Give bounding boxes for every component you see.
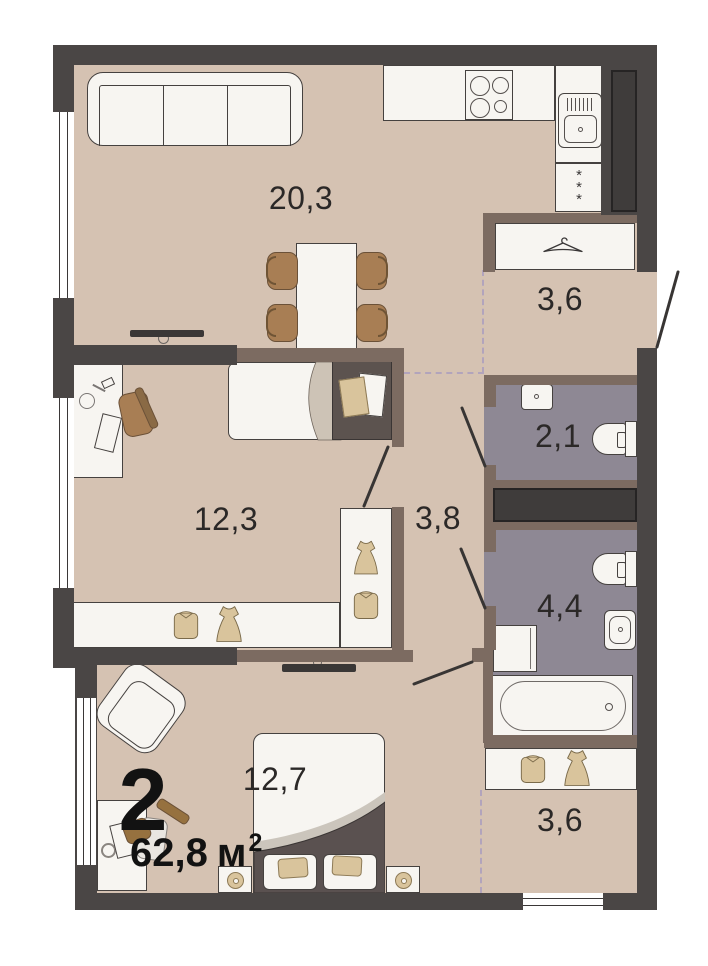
wall-partition — [484, 606, 496, 650]
wardrobe-tall — [340, 508, 392, 648]
toilet-detail — [617, 562, 626, 578]
chair-armrest — [378, 256, 388, 285]
wc-sink — [521, 384, 553, 410]
sofa-cushion-divider — [227, 86, 228, 145]
keyboard — [94, 413, 122, 453]
room-area-label-bedroom-2: 12,3 — [194, 503, 258, 535]
wc-toilet — [592, 423, 626, 455]
pillow-tan — [338, 376, 369, 417]
zone-line-bedroom-hall — [480, 790, 482, 893]
dining-chair — [267, 252, 298, 290]
wall-interior-bearing — [73, 345, 237, 365]
wall-exterior-right — [637, 348, 657, 908]
window-glass-line — [67, 398, 68, 588]
window-glass-line — [523, 898, 603, 899]
dining-chair — [356, 304, 387, 342]
tv-bedroom — [282, 664, 356, 672]
window-glass-line — [90, 698, 91, 865]
wall-partition — [484, 465, 496, 480]
lamp-center — [401, 878, 407, 884]
wall-partition — [484, 522, 637, 530]
nightstand — [386, 866, 420, 893]
wall-exterior-left — [53, 45, 74, 112]
room-area-label-wardrobe-hall: 3,6 — [537, 804, 583, 836]
washer-door-line — [530, 628, 531, 669]
drain-icon — [618, 627, 623, 632]
drain-icon — [605, 703, 613, 711]
shirt-icon — [172, 608, 200, 641]
bathtub — [492, 675, 633, 737]
chair-armrest — [378, 308, 388, 337]
wall-partition — [237, 650, 413, 662]
chair-armrest — [266, 308, 276, 337]
toilet-detail — [617, 432, 626, 448]
wall-partition — [484, 385, 496, 407]
wall-partition — [484, 480, 637, 488]
shirt-icon — [352, 588, 380, 621]
dress-icon — [351, 538, 381, 578]
burner-icon — [470, 98, 490, 118]
pillow-tan — [331, 855, 362, 877]
wall-partition — [484, 530, 496, 552]
floor-plan: * * * — [0, 0, 708, 966]
washing-machine — [493, 625, 537, 672]
wall-partition — [484, 375, 637, 385]
drain-icon — [534, 394, 539, 399]
bath-toilet — [592, 553, 626, 585]
dining-chair — [356, 252, 387, 290]
room-area-label-corridor: 3,8 — [415, 502, 461, 534]
dress-icon — [213, 604, 245, 645]
fridge: * * * — [555, 163, 603, 212]
zone-line-hall-corridor — [404, 372, 484, 374]
shirt-icon — [519, 752, 547, 785]
burner-icon — [470, 76, 490, 96]
bath-toilet-tank — [625, 551, 637, 587]
window-glass-line — [83, 698, 84, 865]
total-area-title: 62,8м2 — [130, 833, 262, 873]
wall-partition — [392, 352, 404, 447]
wall-exterior-top — [53, 45, 601, 65]
tv-living-room — [130, 330, 204, 337]
floor-entrance-opening — [637, 272, 657, 348]
sofa — [87, 72, 303, 146]
room-area-label-bathroom: 4,4 — [537, 590, 583, 622]
total-area-unit: м — [217, 831, 247, 875]
wall-partition — [484, 735, 637, 748]
wall-partition — [484, 488, 493, 522]
room-area-label-living-kitchen: 20,3 — [269, 182, 333, 214]
wall-interior-bearing — [53, 648, 237, 665]
wall-partition — [483, 660, 493, 743]
sofa-seat — [99, 85, 291, 146]
window — [53, 398, 74, 588]
dress-icon — [561, 748, 593, 789]
wall-partition — [237, 348, 404, 362]
desk — [73, 362, 123, 478]
window-glass-line — [523, 905, 603, 906]
dining-table — [296, 243, 357, 353]
wc-toilet-tank — [625, 421, 637, 457]
ventilation-shaft — [493, 488, 637, 522]
lamp-center — [233, 878, 239, 884]
zone-line-kitchen-hall — [482, 270, 484, 373]
room-area-label-entry-hall: 3,6 — [537, 283, 583, 315]
window — [77, 698, 96, 865]
dish-drainer-icon — [567, 98, 595, 111]
wardrobe-bottom — [73, 602, 340, 648]
wall-exterior-right — [637, 215, 657, 272]
desk-lamp-icon — [79, 393, 95, 409]
entrance-door-swing — [657, 272, 678, 347]
hanger-icon — [541, 236, 585, 256]
snowflake-icon: * * * — [556, 164, 602, 211]
total-area-value: 62,8 — [130, 831, 208, 875]
total-area-superscript: 2 — [248, 829, 262, 857]
stove — [465, 70, 513, 120]
room-area-label-bedroom-1: 12,7 — [243, 763, 307, 795]
lamp-head — [101, 377, 115, 389]
snowflake-glyph: * — [576, 194, 582, 206]
wall-partition — [392, 507, 404, 650]
window-glass-line — [59, 112, 60, 298]
chair-armrest — [266, 256, 276, 285]
burner-icon — [494, 100, 507, 113]
pillow-tan — [277, 857, 308, 879]
wall-exterior-left — [53, 298, 74, 398]
room-area-label-wc: 2,1 — [535, 420, 581, 452]
window — [53, 112, 74, 298]
window-glass-line — [67, 112, 68, 298]
window — [523, 893, 603, 910]
bath-sink — [604, 610, 636, 650]
drain-icon — [578, 127, 583, 132]
bed-headboard-unit — [332, 360, 392, 440]
sofa-cushion-divider — [163, 86, 164, 145]
dining-chair — [267, 304, 298, 342]
burner-icon — [492, 77, 509, 94]
kitchen-sink — [558, 93, 602, 148]
shaft-column — [611, 70, 637, 212]
window-glass-line — [59, 398, 60, 588]
